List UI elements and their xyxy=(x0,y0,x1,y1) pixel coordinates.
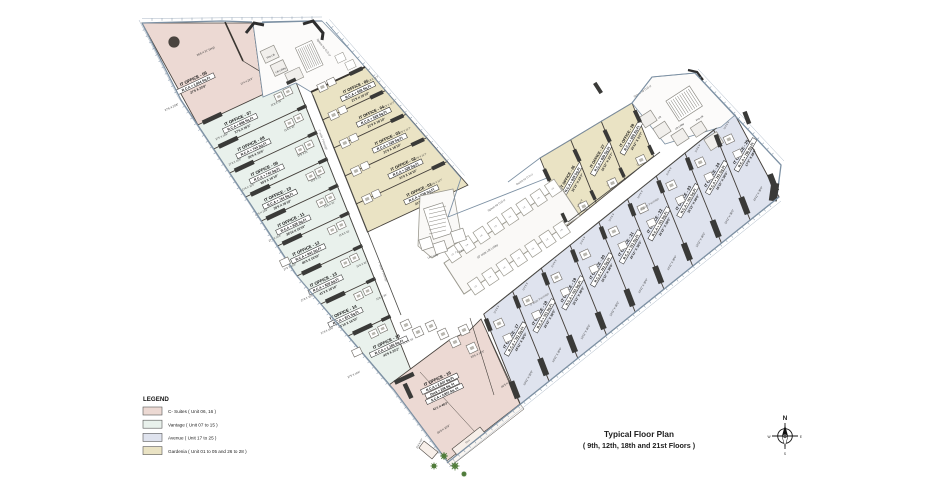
svg-text:N: N xyxy=(783,415,788,422)
svg-text:Typical Floor Plan: Typical Floor Plan xyxy=(604,430,674,439)
svg-text:Avenue ( Unit 17 to 25 ): Avenue ( Unit 17 to 25 ) xyxy=(168,436,217,441)
svg-text:W: W xyxy=(767,435,770,439)
svg-text:LEGEND: LEGEND xyxy=(143,396,169,403)
svg-text:Gardenia ( Unit 01 to 05 and 2: Gardenia ( Unit 01 to 05 and 26 to 28 ) xyxy=(168,449,247,454)
svg-text:E: E xyxy=(800,435,802,439)
svg-text:( 9th, 12th, 18th and 21st Flo: ( 9th, 12th, 18th and 21st Floors ) xyxy=(583,441,696,450)
svg-text:S: S xyxy=(784,452,786,456)
svg-text:C- Suites ( Unit 06, 16 ): C- Suites ( Unit 06, 16 ) xyxy=(168,409,216,414)
svg-text:Vantage ( Unit 07 to 15 ): Vantage ( Unit 07 to 15 ) xyxy=(168,422,218,427)
